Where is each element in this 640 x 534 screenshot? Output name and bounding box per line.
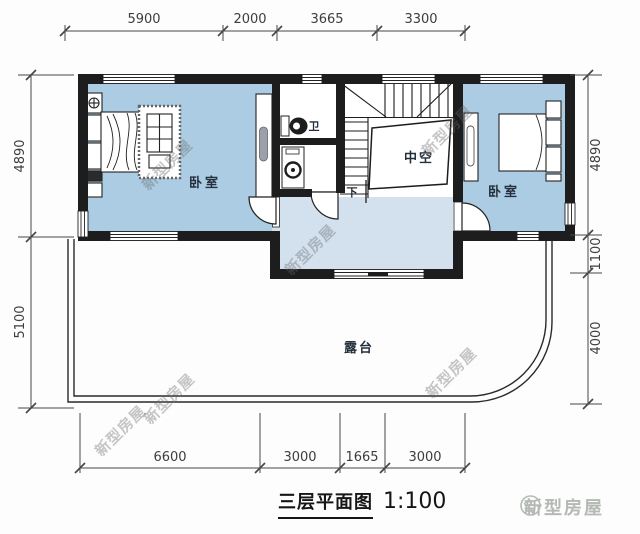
- toilet-icon: [281, 116, 289, 136]
- door-leaf-bedroom-right: [454, 202, 462, 231]
- brand-logo: 新型房屋: [519, 494, 604, 520]
- floor-plan-page: 5900 2000 3665 3300 6600 3000 1665 3000 …: [0, 0, 640, 534]
- caption-title: 三层平面图: [278, 488, 373, 519]
- dim-top-3: 3665: [297, 13, 357, 27]
- dim-right-1: 4890: [590, 125, 604, 185]
- caption: 三层平面图 1:100: [278, 488, 446, 519]
- dim-top-1: 5900: [114, 13, 174, 27]
- label-stairs-down: 下: [345, 184, 359, 200]
- label-bathroom: 卫: [306, 118, 322, 134]
- label-terrace: 露台: [329, 337, 389, 356]
- dim-top-4: 3300: [391, 13, 451, 27]
- dim-top-2: 2000: [220, 13, 280, 27]
- dim-bottom-3: 1665: [332, 451, 392, 465]
- dim-right-3: 4000: [590, 308, 604, 368]
- dim-left-1: 4890: [14, 126, 28, 186]
- dim-bottom-1: 6600: [140, 451, 200, 465]
- dim-bottom-2: 3000: [270, 451, 330, 465]
- dim-left-2: 5100: [14, 292, 28, 352]
- label-bedroom-right: 卧室: [474, 181, 534, 200]
- label-bedroom-left: 卧室: [175, 172, 235, 191]
- dim-right-2: 1100: [590, 224, 604, 284]
- dim-bottom-4: 3000: [395, 451, 455, 465]
- caption-scale: 1:100: [383, 489, 446, 514]
- brand-logo-icon: [519, 494, 542, 517]
